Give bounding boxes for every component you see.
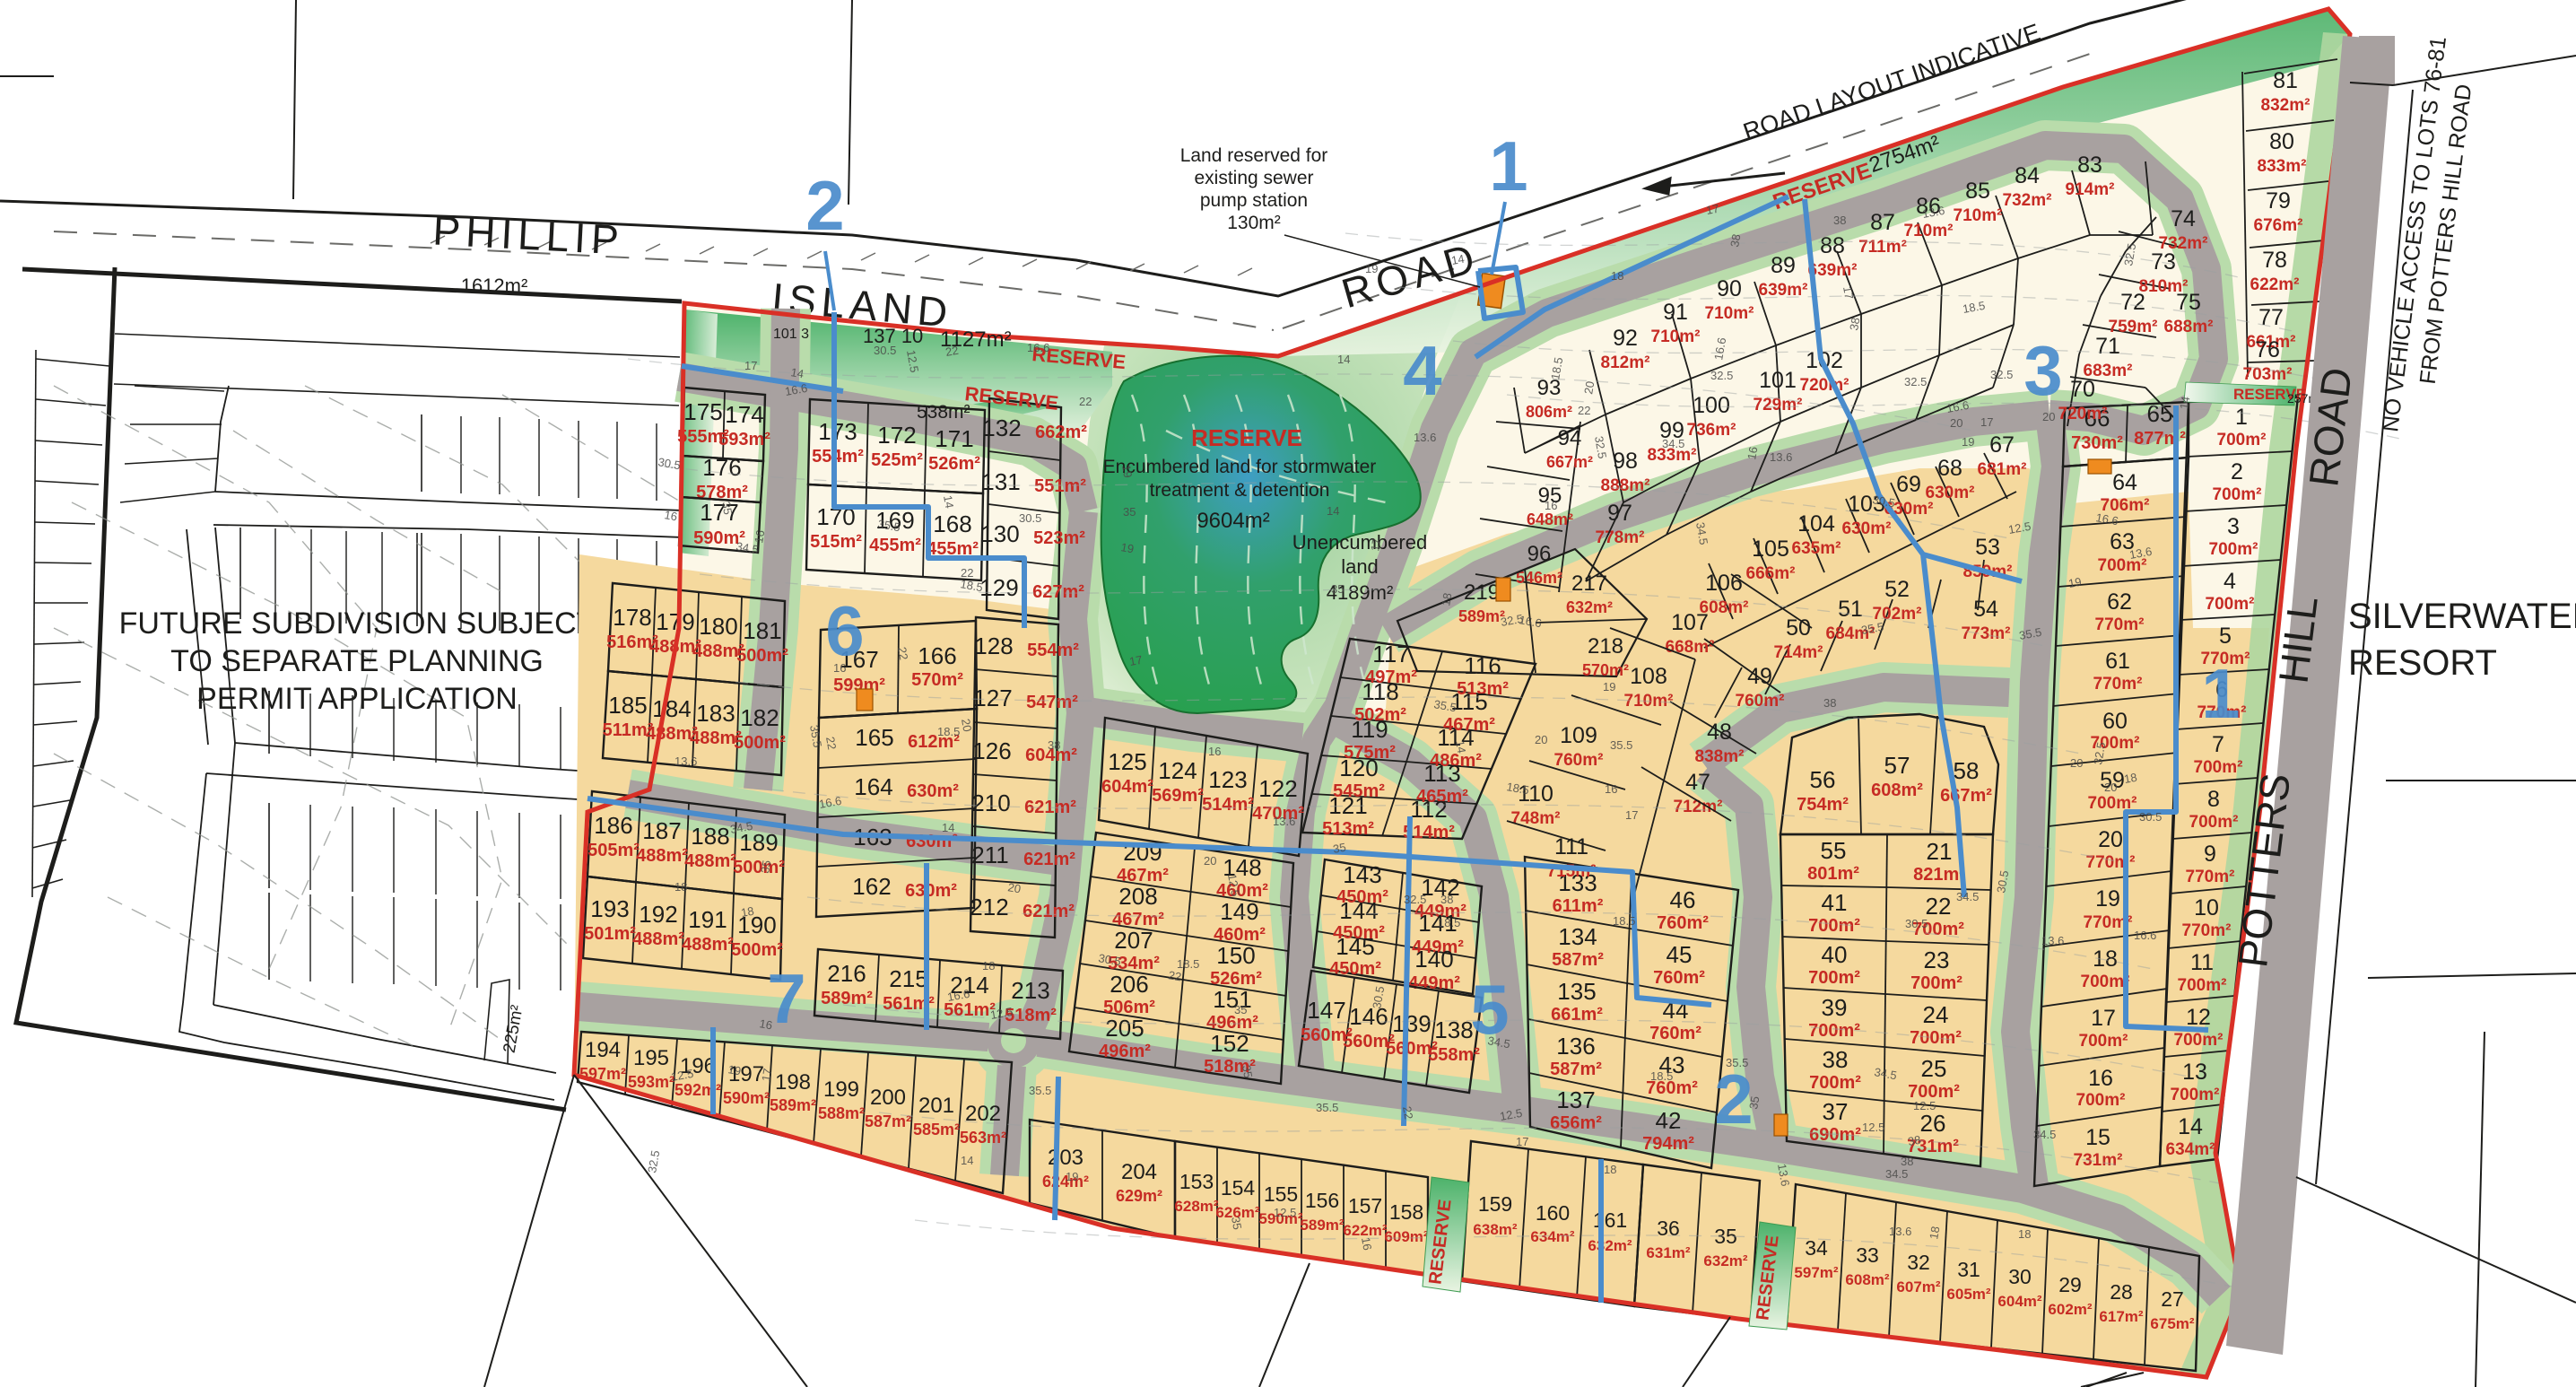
svg-text:634m²: 634m² — [2166, 1140, 2215, 1159]
svg-text:165: 165 — [855, 724, 893, 751]
svg-text:17: 17 — [1368, 537, 1383, 553]
svg-text:14: 14 — [789, 365, 805, 380]
svg-text:710m²: 710m² — [1904, 222, 1954, 240]
svg-text:208: 208 — [1118, 883, 1157, 910]
svg-text:137: 137 — [1556, 1086, 1595, 1113]
svg-text:18.5: 18.5 — [937, 725, 960, 738]
svg-text:111: 111 — [1554, 834, 1588, 859]
svg-text:34.5: 34.5 — [2033, 1128, 2056, 1141]
svg-text:773m²: 773m² — [1962, 624, 2011, 643]
svg-text:675m²: 675m² — [2150, 1315, 2194, 1332]
svg-text:168: 168 — [933, 510, 971, 537]
svg-text:62: 62 — [2107, 589, 2132, 615]
svg-text:192: 192 — [639, 901, 677, 928]
svg-text:216: 216 — [827, 960, 866, 987]
svg-text:20: 20 — [2042, 410, 2055, 423]
svg-text:119: 119 — [1351, 716, 1388, 743]
svg-text:85: 85 — [1965, 179, 1990, 204]
svg-text:812m²: 812m² — [1601, 353, 1650, 372]
svg-text:pump station: pump station — [1200, 190, 1308, 211]
svg-text:215: 215 — [889, 965, 927, 992]
svg-text:PERMIT APPLICATION: PERMIT APPLICATION — [196, 682, 518, 716]
svg-text:54: 54 — [1973, 597, 1998, 622]
svg-text:2: 2 — [805, 166, 844, 245]
svg-text:587m²: 587m² — [1552, 950, 1604, 970]
svg-text:140: 140 — [1414, 946, 1453, 973]
svg-text:681m²: 681m² — [1978, 460, 2027, 479]
svg-text:609m²: 609m² — [1384, 1228, 1428, 1245]
svg-text:188: 188 — [691, 823, 729, 850]
svg-text:700m²: 700m² — [2171, 1086, 2220, 1104]
svg-text:129: 129 — [979, 574, 1018, 601]
svg-text:656m²: 656m² — [1550, 1113, 1602, 1133]
svg-text:130m²: 130m² — [1227, 213, 1281, 233]
svg-text:28: 28 — [2110, 1280, 2133, 1304]
svg-text:39: 39 — [1822, 994, 1848, 1021]
svg-text:199: 199 — [823, 1077, 859, 1102]
svg-text:154: 154 — [1221, 1176, 1256, 1199]
svg-text:30.5: 30.5 — [1905, 917, 1928, 930]
svg-text:87: 87 — [1870, 210, 1895, 235]
svg-text:160: 160 — [1536, 1201, 1570, 1225]
svg-text:608m²: 608m² — [1871, 781, 1923, 800]
svg-text:732m²: 732m² — [2003, 191, 2052, 210]
svg-text:18: 18 — [2123, 771, 2138, 786]
svg-text:171: 171 — [935, 425, 973, 452]
svg-text:118: 118 — [1362, 678, 1398, 705]
svg-text:166: 166 — [918, 642, 956, 669]
svg-text:683m²: 683m² — [2084, 362, 2133, 380]
svg-text:24: 24 — [1923, 1001, 1949, 1028]
svg-text:136: 136 — [1556, 1033, 1595, 1060]
svg-text:FUTURE SUBDIVISION SUBJECT: FUTURE SUBDIVISION SUBJECT — [119, 606, 596, 641]
svg-text:10: 10 — [2194, 895, 2219, 920]
svg-text:18: 18 — [1611, 269, 1623, 283]
svg-text:32.5: 32.5 — [1904, 375, 1927, 388]
svg-text:212: 212 — [970, 894, 1008, 920]
svg-text:35.5: 35.5 — [1610, 738, 1632, 752]
svg-text:710m²: 710m² — [1651, 327, 1701, 346]
svg-text:14: 14 — [2178, 1114, 2203, 1139]
svg-text:32.5: 32.5 — [1404, 893, 1426, 906]
svg-text:33: 33 — [1856, 1243, 1879, 1267]
svg-text:22: 22 — [1926, 893, 1952, 920]
svg-text:13.6: 13.6 — [1273, 815, 1295, 828]
svg-text:Land reserved for: Land reserved for — [1180, 145, 1328, 166]
svg-text:34.5: 34.5 — [1956, 890, 1979, 903]
svg-text:80: 80 — [2269, 129, 2294, 154]
svg-text:22: 22 — [1578, 404, 1590, 417]
svg-text:700m²: 700m² — [2209, 540, 2258, 559]
svg-text:3: 3 — [2023, 331, 2062, 410]
svg-text:202: 202 — [965, 1102, 1001, 1126]
svg-text:20: 20 — [2104, 781, 2117, 794]
svg-text:184: 184 — [652, 695, 691, 722]
svg-text:589m²: 589m² — [1300, 1217, 1344, 1234]
svg-text:158: 158 — [1389, 1200, 1423, 1224]
svg-text:602m²: 602m² — [2048, 1301, 2092, 1318]
svg-text:6: 6 — [825, 591, 864, 670]
svg-text:488m²: 488m² — [682, 935, 734, 955]
svg-text:19: 19 — [1962, 435, 1974, 449]
svg-text:46: 46 — [1670, 886, 1696, 913]
svg-text:19: 19 — [1119, 540, 1135, 555]
svg-text:821m²: 821m² — [1913, 865, 1965, 885]
svg-text:589m²: 589m² — [770, 1096, 816, 1114]
svg-text:22: 22 — [895, 646, 910, 661]
svg-text:109: 109 — [1560, 723, 1597, 748]
svg-text:139: 139 — [1392, 1010, 1431, 1037]
svg-text:22: 22 — [944, 344, 960, 359]
svg-text:23: 23 — [1924, 946, 1950, 973]
svg-text:40: 40 — [1822, 941, 1848, 968]
svg-text:700m²: 700m² — [2076, 1091, 2126, 1110]
svg-text:22: 22 — [1167, 968, 1182, 983]
svg-text:12.5: 12.5 — [1862, 1121, 1884, 1134]
svg-text:703m²: 703m² — [2243, 365, 2293, 384]
svg-text:30: 30 — [2008, 1265, 2032, 1288]
svg-text:25: 25 — [1921, 1055, 1947, 1082]
svg-text:621m²: 621m² — [1023, 902, 1075, 921]
svg-text:18: 18 — [2093, 946, 2118, 972]
svg-text:157: 157 — [1348, 1194, 1382, 1217]
svg-text:162: 162 — [852, 873, 891, 900]
svg-text:38: 38 — [1048, 738, 1060, 752]
svg-text:21: 21 — [1927, 838, 1953, 865]
svg-text:92: 92 — [1613, 326, 1638, 351]
svg-text:14: 14 — [1327, 504, 1339, 518]
svg-text:554m²: 554m² — [1027, 641, 1079, 660]
svg-text:14: 14 — [1337, 353, 1350, 366]
svg-text:52: 52 — [1884, 577, 1910, 602]
svg-text:34.5: 34.5 — [1662, 437, 1684, 450]
svg-text:29: 29 — [2058, 1273, 2082, 1296]
svg-text:104: 104 — [1797, 511, 1835, 536]
svg-text:1: 1 — [1489, 126, 1527, 205]
svg-text:17: 17 — [1705, 202, 1720, 217]
svg-text:513m²: 513m² — [1322, 819, 1374, 839]
svg-text:759m²: 759m² — [2109, 318, 2158, 336]
svg-text:205: 205 — [1105, 1015, 1144, 1042]
svg-text:56: 56 — [1810, 766, 1836, 793]
svg-text:632m²: 632m² — [1588, 1237, 1632, 1254]
svg-text:593m²: 593m² — [628, 1073, 674, 1091]
svg-text:700m²: 700m² — [2189, 813, 2239, 832]
svg-text:117: 117 — [1372, 641, 1409, 667]
svg-text:617m²: 617m² — [2099, 1308, 2143, 1325]
svg-text:838m²: 838m² — [1695, 747, 1745, 766]
svg-text:833m²: 833m² — [2258, 157, 2307, 176]
svg-text:143: 143 — [1343, 861, 1381, 888]
svg-text:500m²: 500m² — [734, 733, 786, 753]
svg-text:632m²: 632m² — [1566, 598, 1613, 616]
svg-text:27: 27 — [2161, 1287, 2184, 1311]
svg-text:666m²: 666m² — [1746, 564, 1796, 583]
svg-text:127: 127 — [973, 685, 1012, 711]
svg-text:32: 32 — [1907, 1251, 1930, 1274]
svg-text:32.5: 32.5 — [1990, 368, 2013, 381]
svg-text:156: 156 — [1305, 1189, 1339, 1212]
svg-text:218: 218 — [1588, 634, 1623, 659]
svg-text:101: 101 — [1759, 368, 1797, 393]
svg-text:605m²: 605m² — [1946, 1286, 1990, 1303]
svg-text:711m²: 711m² — [1858, 238, 1907, 257]
svg-text:585m²: 585m² — [913, 1121, 960, 1138]
svg-text:17: 17 — [1980, 415, 1993, 429]
svg-text:630m²: 630m² — [905, 881, 957, 901]
svg-text:700m²: 700m² — [2213, 485, 2262, 504]
svg-text:667m²: 667m² — [1546, 453, 1593, 471]
svg-text:35: 35 — [1234, 1003, 1247, 1016]
svg-text:19: 19 — [2095, 886, 2120, 912]
svg-text:35: 35 — [1331, 582, 1344, 596]
svg-text:20: 20 — [1581, 380, 1597, 396]
svg-text:18: 18 — [1927, 1226, 1942, 1241]
svg-text:164: 164 — [854, 773, 892, 800]
svg-text:35: 35 — [1746, 1095, 1762, 1111]
svg-text:888m²: 888m² — [1601, 476, 1650, 495]
svg-text:700m²: 700m² — [2206, 595, 2255, 614]
svg-text:34.5: 34.5 — [1885, 1167, 1908, 1181]
svg-text:700m²: 700m² — [1910, 1028, 1962, 1048]
svg-text:760m²: 760m² — [1554, 751, 1604, 770]
svg-text:500m²: 500m² — [736, 646, 788, 666]
svg-text:116: 116 — [1464, 652, 1501, 679]
svg-text:35: 35 — [1240, 1064, 1255, 1079]
svg-text:597m²: 597m² — [1794, 1264, 1838, 1281]
svg-text:501m²: 501m² — [584, 924, 636, 944]
svg-text:630m²: 630m² — [907, 781, 959, 801]
svg-text:7: 7 — [2212, 732, 2224, 757]
svg-text:19: 19 — [727, 1062, 742, 1077]
svg-text:13.6: 13.6 — [1770, 450, 1792, 464]
svg-text:64: 64 — [2112, 470, 2137, 495]
svg-text:94: 94 — [1558, 426, 1582, 450]
svg-text:60: 60 — [2102, 709, 2128, 734]
svg-text:20: 20 — [1950, 416, 1962, 430]
svg-text:2: 2 — [2231, 459, 2243, 484]
svg-text:13.6: 13.6 — [2041, 934, 2064, 947]
svg-text:22: 22 — [1400, 1105, 1415, 1121]
svg-text:153: 153 — [1179, 1170, 1214, 1193]
svg-text:18.5: 18.5 — [1177, 957, 1199, 971]
svg-text:97: 97 — [1607, 501, 1632, 526]
svg-text:22: 22 — [1079, 395, 1092, 408]
svg-text:523m²: 523m² — [1033, 528, 1085, 548]
svg-text:604m²: 604m² — [1997, 1293, 2041, 1310]
svg-text:206: 206 — [1110, 971, 1148, 998]
svg-text:70: 70 — [2070, 377, 2095, 402]
svg-text:35: 35 — [1123, 505, 1136, 519]
svg-text:16: 16 — [2088, 1066, 2113, 1091]
svg-text:126: 126 — [972, 737, 1011, 764]
svg-text:113: 113 — [1423, 760, 1460, 787]
svg-text:123: 123 — [1208, 766, 1247, 793]
svg-text:806m²: 806m² — [1526, 403, 1572, 421]
svg-text:736m²: 736m² — [1687, 421, 1736, 440]
svg-text:639m²: 639m² — [1759, 281, 1808, 300]
svg-text:488m²: 488m² — [684, 851, 736, 871]
svg-text:1: 1 — [2235, 405, 2248, 430]
svg-text:17: 17 — [759, 1068, 774, 1083]
svg-text:688m²: 688m² — [2164, 318, 2214, 336]
svg-text:20: 20 — [1204, 854, 1216, 868]
svg-text:38: 38 — [1907, 1133, 1922, 1148]
svg-text:183: 183 — [696, 700, 735, 727]
svg-text:30.5: 30.5 — [2139, 810, 2162, 824]
svg-text:622m²: 622m² — [2250, 275, 2300, 294]
svg-text:32.5: 32.5 — [1710, 369, 1733, 382]
svg-text:16: 16 — [1359, 1236, 1374, 1252]
svg-text:144: 144 — [1339, 897, 1378, 924]
svg-text:505m²: 505m² — [587, 841, 640, 860]
svg-text:176: 176 — [702, 454, 741, 481]
svg-text:18: 18 — [1604, 1163, 1616, 1176]
svg-text:58: 58 — [1954, 757, 1980, 784]
svg-text:732m²: 732m² — [2159, 234, 2208, 253]
svg-text:15: 15 — [2085, 1125, 2110, 1150]
svg-text:37: 37 — [1823, 1098, 1849, 1125]
svg-text:676m²: 676m² — [2254, 216, 2303, 235]
svg-text:69: 69 — [1896, 472, 1921, 497]
svg-text:36: 36 — [1657, 1217, 1680, 1240]
svg-text:801m²: 801m² — [1807, 864, 1859, 884]
svg-text:608m²: 608m² — [1700, 598, 1749, 617]
svg-text:18: 18 — [982, 959, 995, 973]
svg-text:18: 18 — [674, 880, 687, 894]
svg-text:83: 83 — [2077, 153, 2102, 178]
svg-text:101 3: 101 3 — [773, 327, 809, 342]
svg-text:18.5: 18.5 — [1438, 916, 1460, 929]
svg-text:204: 204 — [1121, 1160, 1157, 1184]
svg-text:19: 19 — [1603, 680, 1615, 693]
svg-text:38: 38 — [1823, 696, 1836, 710]
svg-text:193: 193 — [590, 895, 629, 922]
svg-text:608m²: 608m² — [1845, 1271, 1889, 1288]
svg-text:22: 22 — [961, 566, 973, 580]
svg-text:551m²: 551m² — [1034, 476, 1086, 496]
svg-text:173: 173 — [818, 418, 857, 445]
svg-text:17: 17 — [1516, 1135, 1528, 1148]
svg-text:18: 18 — [2018, 1227, 2031, 1241]
svg-text:760m²: 760m² — [1653, 968, 1705, 988]
svg-text:207: 207 — [1114, 927, 1153, 954]
svg-text:19: 19 — [2067, 575, 2083, 590]
svg-text:180: 180 — [699, 613, 737, 640]
svg-text:16: 16 — [752, 529, 767, 545]
svg-text:112: 112 — [1410, 796, 1447, 823]
svg-text:11: 11 — [2190, 950, 2214, 975]
svg-text:65: 65 — [2147, 400, 2173, 427]
svg-text:13.6: 13.6 — [1414, 431, 1436, 444]
svg-text:710m²: 710m² — [1705, 304, 1754, 323]
svg-text:17: 17 — [1625, 808, 1638, 822]
svg-text:760m²: 760m² — [1649, 1024, 1701, 1043]
svg-text:96: 96 — [1527, 542, 1552, 566]
svg-text:20: 20 — [1006, 880, 1022, 895]
svg-text:700m²: 700m² — [2178, 976, 2227, 995]
svg-text:35.5: 35.5 — [1029, 1084, 1051, 1097]
svg-text:13: 13 — [2182, 1060, 2207, 1085]
svg-text:35: 35 — [758, 859, 773, 875]
svg-text:16: 16 — [1745, 446, 1760, 461]
svg-text:770m²: 770m² — [2186, 868, 2235, 886]
svg-text:731m²: 731m² — [2074, 1151, 2123, 1170]
svg-text:31: 31 — [1957, 1258, 1980, 1281]
svg-text:108: 108 — [1630, 664, 1667, 689]
svg-text:700m²: 700m² — [2081, 973, 2130, 991]
svg-text:488m²: 488m² — [636, 846, 688, 866]
svg-text:147: 147 — [1307, 997, 1345, 1024]
svg-text:7: 7 — [767, 959, 805, 1038]
svg-text:existing sewer: existing sewer — [1194, 168, 1313, 188]
svg-text:76: 76 — [2255, 337, 2280, 362]
svg-text:SILVERWATER: SILVERWATER — [2348, 597, 2576, 636]
svg-text:61: 61 — [2105, 649, 2130, 674]
svg-text:455m²: 455m² — [869, 536, 921, 555]
svg-text:748m²: 748m² — [1511, 809, 1561, 828]
svg-text:18: 18 — [740, 904, 755, 920]
svg-text:17: 17 — [1841, 285, 1856, 301]
svg-text:219: 219 — [1464, 580, 1500, 605]
svg-text:131: 131 — [981, 468, 1020, 495]
svg-text:14: 14 — [1450, 252, 1466, 267]
svg-text:186: 186 — [594, 812, 632, 839]
svg-text:Encumbered land for stormwater: Encumbered land for stormwater — [1103, 457, 1377, 477]
svg-text:12: 12 — [2186, 1005, 2211, 1030]
svg-text:16: 16 — [1605, 782, 1617, 796]
svg-text:73: 73 — [2151, 249, 2176, 275]
svg-text:74: 74 — [2171, 206, 2196, 231]
svg-text:546m²: 546m² — [1516, 569, 1562, 587]
svg-text:16.6: 16.6 — [2134, 929, 2156, 942]
svg-text:661m²: 661m² — [1551, 1005, 1603, 1025]
svg-text:570m²: 570m² — [911, 670, 963, 690]
svg-text:198: 198 — [775, 1070, 811, 1095]
svg-text:38: 38 — [1901, 1155, 1913, 1168]
svg-text:178: 178 — [613, 604, 651, 631]
svg-text:38: 38 — [1440, 893, 1453, 906]
svg-text:200: 200 — [870, 1086, 906, 1110]
svg-text:185: 185 — [608, 692, 647, 719]
svg-text:149: 149 — [1220, 898, 1258, 925]
svg-text:8: 8 — [2207, 787, 2220, 812]
svg-text:38: 38 — [1823, 1046, 1849, 1073]
svg-text:179: 179 — [656, 608, 694, 635]
svg-text:20: 20 — [959, 718, 974, 733]
svg-text:770m²: 770m² — [2182, 921, 2232, 940]
svg-text:638m²: 638m² — [1473, 1221, 1517, 1238]
svg-text:12.5: 12.5 — [1913, 1099, 1936, 1112]
svg-text:563m²: 563m² — [960, 1129, 1006, 1147]
svg-text:500m²: 500m² — [731, 940, 783, 960]
svg-text:38: 38 — [1833, 214, 1846, 227]
svg-text:628m²: 628m² — [1174, 1198, 1218, 1215]
svg-text:770m²: 770m² — [2093, 675, 2143, 693]
svg-text:194: 194 — [585, 1038, 621, 1062]
svg-text:45: 45 — [1667, 941, 1693, 968]
svg-text:700m²: 700m² — [1809, 1073, 1861, 1093]
svg-text:TO SEPARATE PLANNING: TO SEPARATE PLANNING — [170, 644, 544, 678]
svg-text:132: 132 — [982, 414, 1021, 441]
svg-text:30.5: 30.5 — [874, 344, 896, 357]
svg-text:710m²: 710m² — [1954, 206, 2003, 225]
svg-text:700m²: 700m² — [2079, 1032, 2128, 1051]
svg-text:67: 67 — [1989, 432, 2015, 458]
svg-text:631m²: 631m² — [1646, 1244, 1690, 1261]
svg-text:760m²: 760m² — [1736, 692, 1785, 711]
svg-text:191: 191 — [688, 906, 727, 933]
